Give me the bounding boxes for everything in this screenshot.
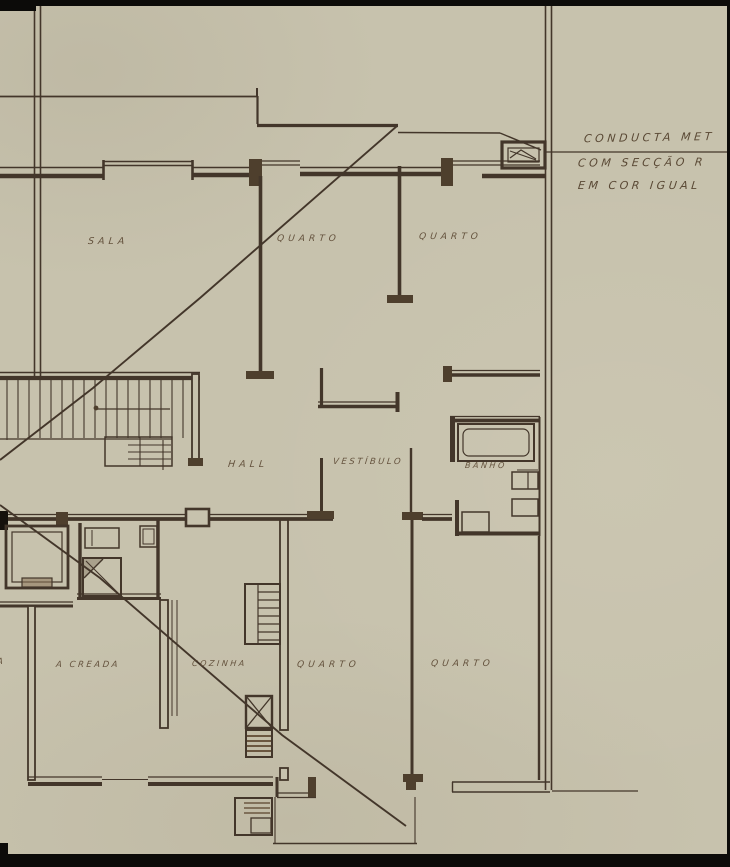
bathtub-fixture	[458, 424, 534, 461]
room-label-creada: A CREADA	[55, 660, 120, 670]
facade-wall-top	[0, 158, 545, 186]
bidet-fixture	[512, 499, 538, 516]
room-label-hall: HALL	[227, 459, 268, 470]
bathroom	[450, 417, 540, 537]
room-label-sala: SALA	[87, 236, 128, 247]
scan-border-top	[0, 0, 730, 6]
room-label-banho: BANHO	[465, 461, 508, 470]
balcony-outline	[273, 797, 417, 844]
bed-fixture	[85, 528, 119, 548]
room-label-quarto-top-right: QUARTO	[418, 232, 482, 242]
balcony-duct-box	[235, 798, 272, 835]
bottom-facade	[28, 776, 638, 844]
room-label-quarto-top-left: QUARTO	[276, 234, 340, 244]
maid-room-fixtures	[83, 526, 157, 596]
annotation-line-1: CONDUCTA MET	[583, 130, 727, 145]
floor-plan-scan: SALA QUARTO QUARTO HALL VESTÍBULO BANHO …	[0, 0, 730, 867]
hatched-box	[246, 730, 272, 757]
annotation-line-2: COM SECÇÃO R	[577, 155, 727, 169]
shelf-column	[245, 584, 280, 644]
scan-border-bottom-left	[0, 843, 8, 867]
staircase	[0, 380, 183, 470]
metal-duct-icon	[502, 142, 545, 168]
room-label-quarto-bottom-left: QUARTO	[296, 660, 360, 670]
elevator-shaft	[6, 526, 68, 588]
scan-border-top-left	[0, 0, 36, 11]
room-label-vestibulo: VESTÍBULO	[332, 457, 403, 467]
room-label-cozinha: COZINHA	[192, 659, 248, 668]
ink-blot	[94, 406, 99, 411]
diagonal-guide-lines	[0, 126, 406, 826]
plan-linework	[0, 0, 730, 867]
balcony-parapet	[452, 782, 550, 792]
washbasin-fixture	[462, 512, 489, 532]
scan-border-bottom	[0, 854, 730, 867]
property-boundary-lines	[0, 5, 552, 790]
kitchen-fixtures	[235, 584, 280, 835]
room-label-quarto-bottom-right: QUARTO	[430, 659, 494, 669]
toilet-fixture	[512, 472, 538, 489]
annotation-line-3: EM COR IGUAL	[577, 179, 727, 192]
